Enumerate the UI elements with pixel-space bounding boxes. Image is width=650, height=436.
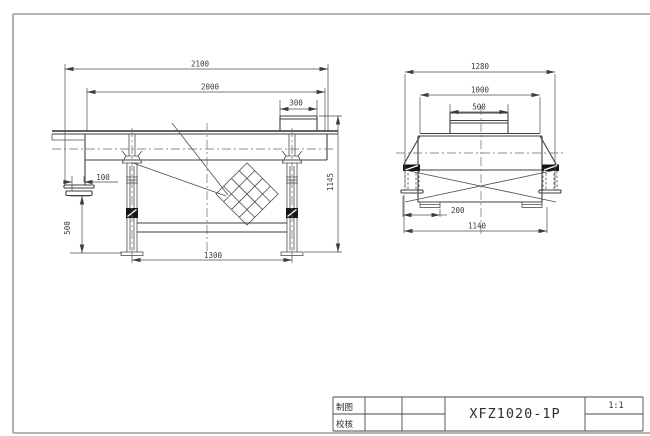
dim-leg-spacing: 1300 — [204, 251, 223, 260]
dim-overall-height: 1145 — [326, 173, 335, 191]
title-scale: 1:1 — [608, 401, 623, 411]
title-model: XFZ1020-1P — [469, 406, 560, 422]
side-view: 2100 2000 300 100 500 1145 1300 — [52, 60, 342, 264]
title-checked-label: 校核 — [336, 419, 354, 429]
dim-inlet-width: 500 — [472, 103, 486, 112]
title-drawn-label: 制图 — [336, 402, 353, 412]
dim-overall-width: 1280 — [471, 62, 490, 71]
vibrator-symbol — [216, 163, 278, 225]
dim-screen-length: 2000 — [201, 83, 220, 92]
title-block: 制图 校核 XFZ1020-1P 1:1 — [333, 397, 643, 431]
dim-overall-length: 2100 — [191, 60, 210, 69]
dim-inlet-length: 300 — [289, 99, 303, 108]
spring-left — [401, 171, 423, 193]
cad-drawing: 2100 2000 300 100 500 1145 1300 — [0, 0, 650, 436]
sheet-frame — [13, 14, 650, 433]
end-view: 1280 1000 500 200 1140 — [396, 62, 566, 236]
dim-base-width: 1140 — [468, 222, 487, 231]
dim-outlet-height: 500 — [63, 221, 72, 235]
dim-foot-offset: 200 — [451, 206, 465, 215]
dim-outlet-offset: 100 — [96, 173, 110, 182]
dim-body-width: 1000 — [471, 86, 490, 95]
cad-drawing-page: 2100 2000 300 100 500 1145 1300 — [0, 0, 650, 436]
